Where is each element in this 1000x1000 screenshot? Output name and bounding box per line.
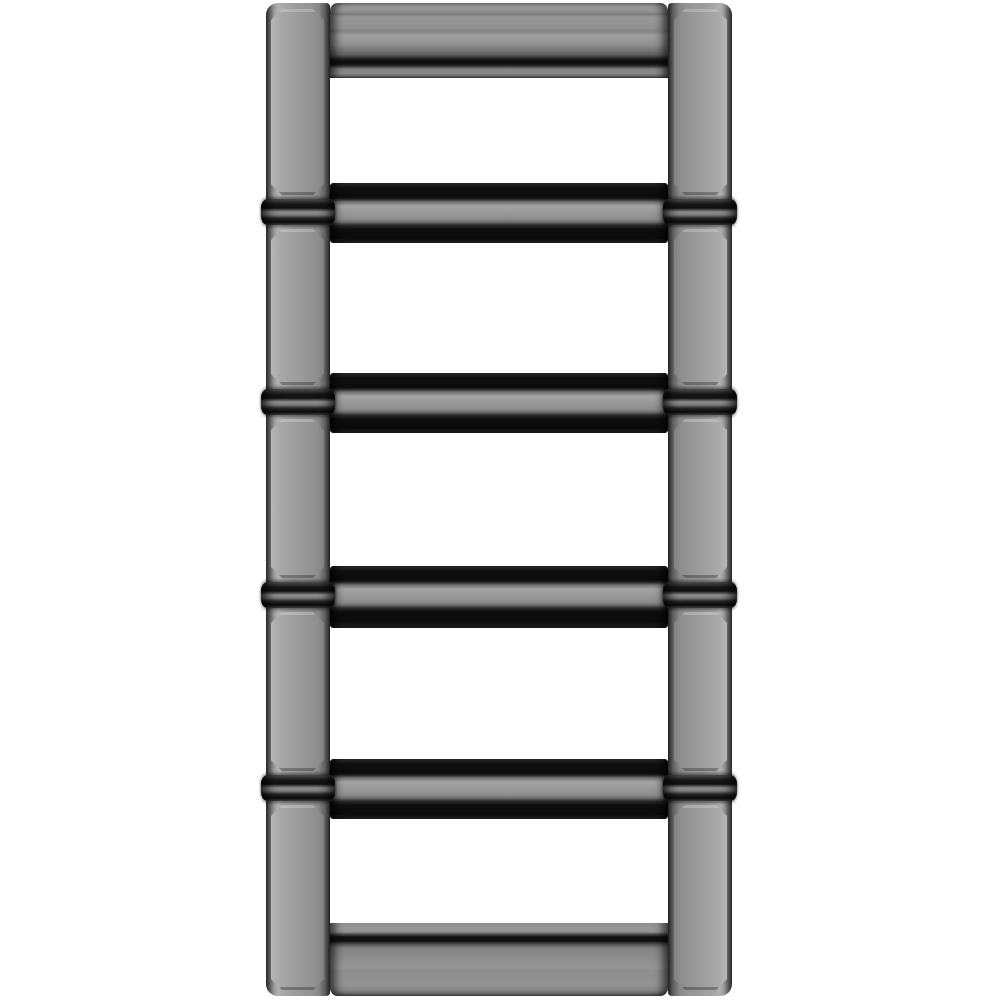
left-rail (266, 3, 330, 996)
hinge-ring (261, 775, 335, 801)
rail-facet-panel (674, 9, 727, 195)
hinge-ring (261, 389, 335, 415)
links-column (330, 3, 668, 996)
junction-rung-3 (330, 566, 668, 628)
rail-facet-panel (271, 9, 324, 195)
junction-rung-4 (330, 759, 668, 819)
link-3-opening (330, 433, 668, 566)
link-4-opening (330, 628, 668, 759)
link-1-opening (330, 78, 668, 183)
hinge-ring (663, 582, 737, 608)
metal-link-ladder (266, 3, 732, 996)
rail-facet-panel (271, 229, 324, 385)
rail-facet-panel (674, 805, 727, 990)
junction-rung-1 (330, 183, 668, 243)
link-5-opening (330, 819, 668, 923)
right-rail (668, 3, 732, 996)
link-2-opening (330, 243, 668, 373)
rail-facet-panel (271, 612, 324, 771)
hinge-ring (261, 582, 335, 608)
rail-facet-panel (674, 229, 727, 385)
bottom-rung-cap (330, 923, 668, 996)
rail-facet-panel (271, 805, 324, 990)
hinge-ring (261, 199, 335, 225)
hinge-ring (663, 775, 737, 801)
hinge-ring (663, 199, 737, 225)
junction-rung-2 (330, 373, 668, 433)
rail-facet-panel (674, 612, 727, 771)
rail-facet-panel (674, 419, 727, 578)
product-photo (0, 0, 1000, 1000)
hinge-ring (663, 389, 737, 415)
top-rung-cap (330, 3, 668, 78)
rail-facet-panel (271, 419, 324, 578)
